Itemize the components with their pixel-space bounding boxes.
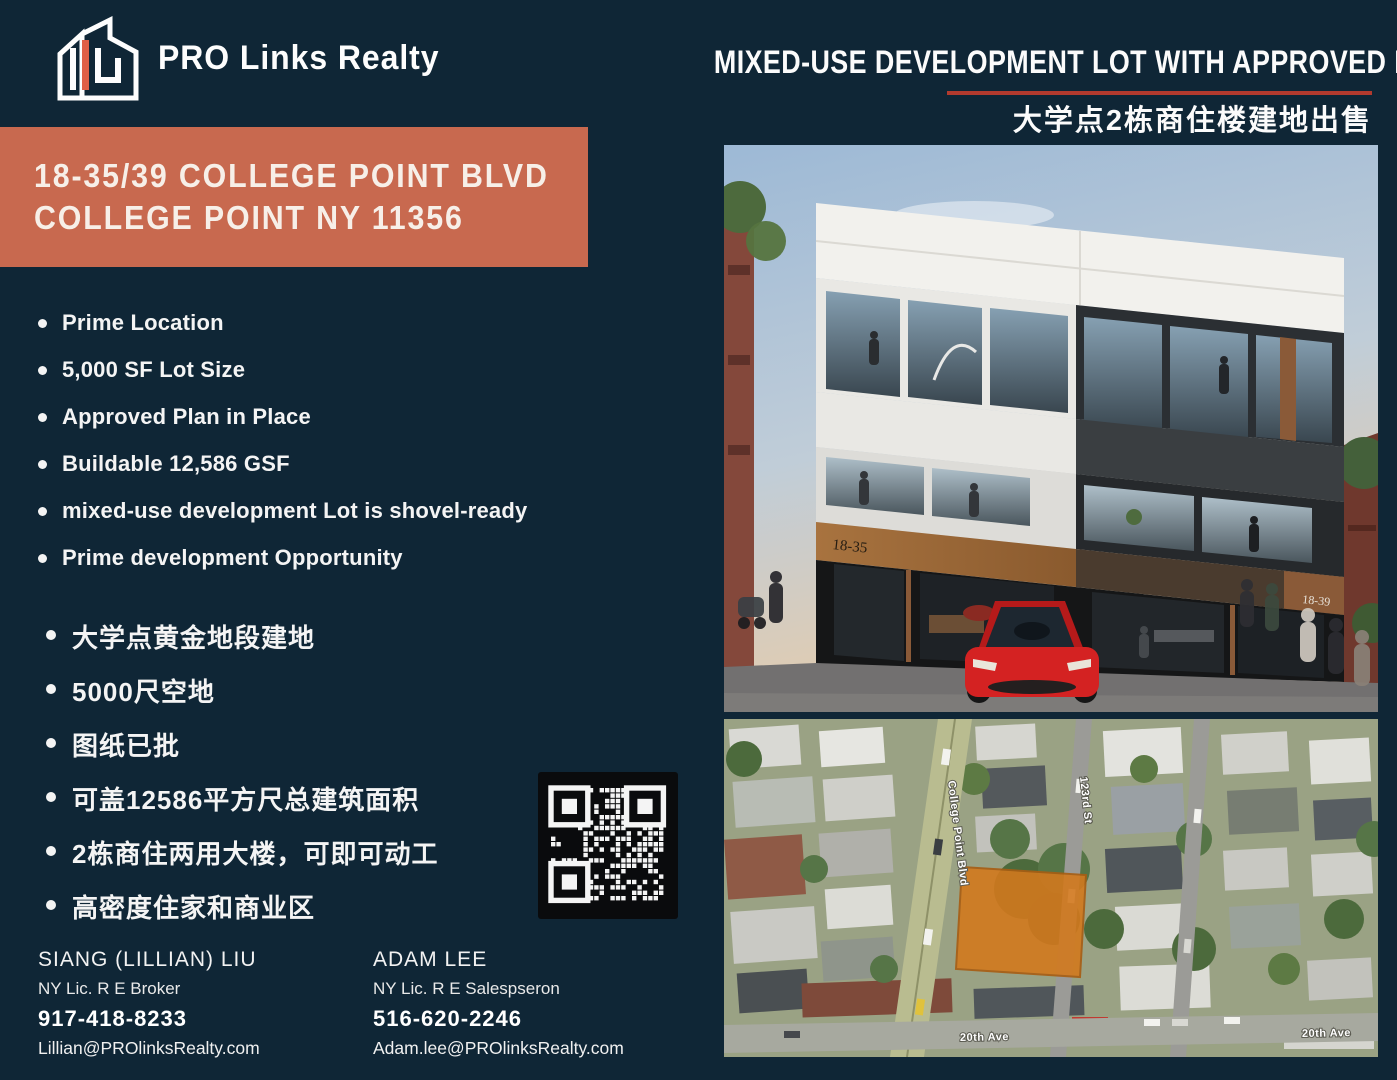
map-ave-label-left: 20th Ave (960, 1031, 1009, 1044)
contact-name: ADAM LEE (373, 948, 638, 972)
qr-code (538, 772, 678, 919)
contact-phone: 917-418-8233 (38, 1006, 303, 1032)
headline-chinese: 大学点2栋商住楼建地出售 (1013, 97, 1372, 139)
contact-license: NY Lic. R E Broker (38, 979, 303, 999)
list-item: Prime Location (36, 310, 696, 336)
contact-name: SIANG (LILLIAN) LIU (38, 948, 303, 972)
list-item: Approved Plan in Place (36, 404, 696, 430)
headline-text: MIXED-USE DEVELOPMENT LOT WITH APPROVED … (714, 44, 1397, 81)
contact-phone: 516-620-2246 (373, 1006, 638, 1032)
flyer-page: PRO Links Realty MIXED-USE DEVELOPMENT L… (0, 0, 1397, 1080)
brand-name: PRO Links Realty (158, 39, 439, 78)
aerial-map-photo: College Point Blvd 123rd St 20th Ave 20t… (724, 719, 1378, 1057)
list-item: 图纸已批 (46, 726, 686, 763)
address-line2: COLLEGE POINT NY 11356 (34, 199, 544, 237)
building-number-right: 18-39 (1302, 592, 1331, 609)
headline-block: MIXED-USE DEVELOPMENT LOT WITH APPROVED … (542, 44, 1372, 81)
features-english-list: Prime Location 5,000 SF Lot Size Approve… (36, 310, 696, 592)
contact-email: Adam.lee@PROlinksRealty.com (373, 1038, 638, 1059)
building-logo-icon (52, 14, 144, 102)
list-item: 大学点黄金地段建地 (46, 618, 686, 655)
contact-email: Lillian@PROlinksRealty.com (38, 1038, 303, 1059)
list-item: 5000尺空地 (46, 672, 686, 709)
contact-card-broker: SIANG (LILLIAN) LIU NY Lic. R E Broker 9… (38, 948, 303, 1059)
qr-code-icon (538, 772, 678, 919)
list-item: Prime development Opportunity (36, 545, 696, 571)
address-banner: 18-35/39 COLLEGE POINT BLVD COLLEGE POIN… (0, 127, 588, 267)
list-item: mixed-use development Lot is shovel-read… (36, 498, 696, 524)
address-line1: 18-35/39 COLLEGE POINT BLVD (34, 157, 544, 195)
headline-underline (947, 91, 1372, 95)
brand-logo: PRO Links Realty (52, 14, 457, 102)
highlighted-lot (956, 867, 1086, 977)
building-rendering-photo: 18-35 18-39 (724, 145, 1378, 712)
map-ave-label-right: 20th Ave (1302, 1027, 1351, 1040)
contacts-section: SIANG (LILLIAN) LIU NY Lic. R E Broker 9… (38, 948, 638, 1059)
contact-card-salesperson: ADAM LEE NY Lic. R E Salespseron 516-620… (373, 948, 638, 1059)
list-item: Buildable 12,586 GSF (36, 451, 696, 477)
contact-license: NY Lic. R E Salespseron (373, 979, 638, 999)
list-item: 5,000 SF Lot Size (36, 357, 696, 383)
